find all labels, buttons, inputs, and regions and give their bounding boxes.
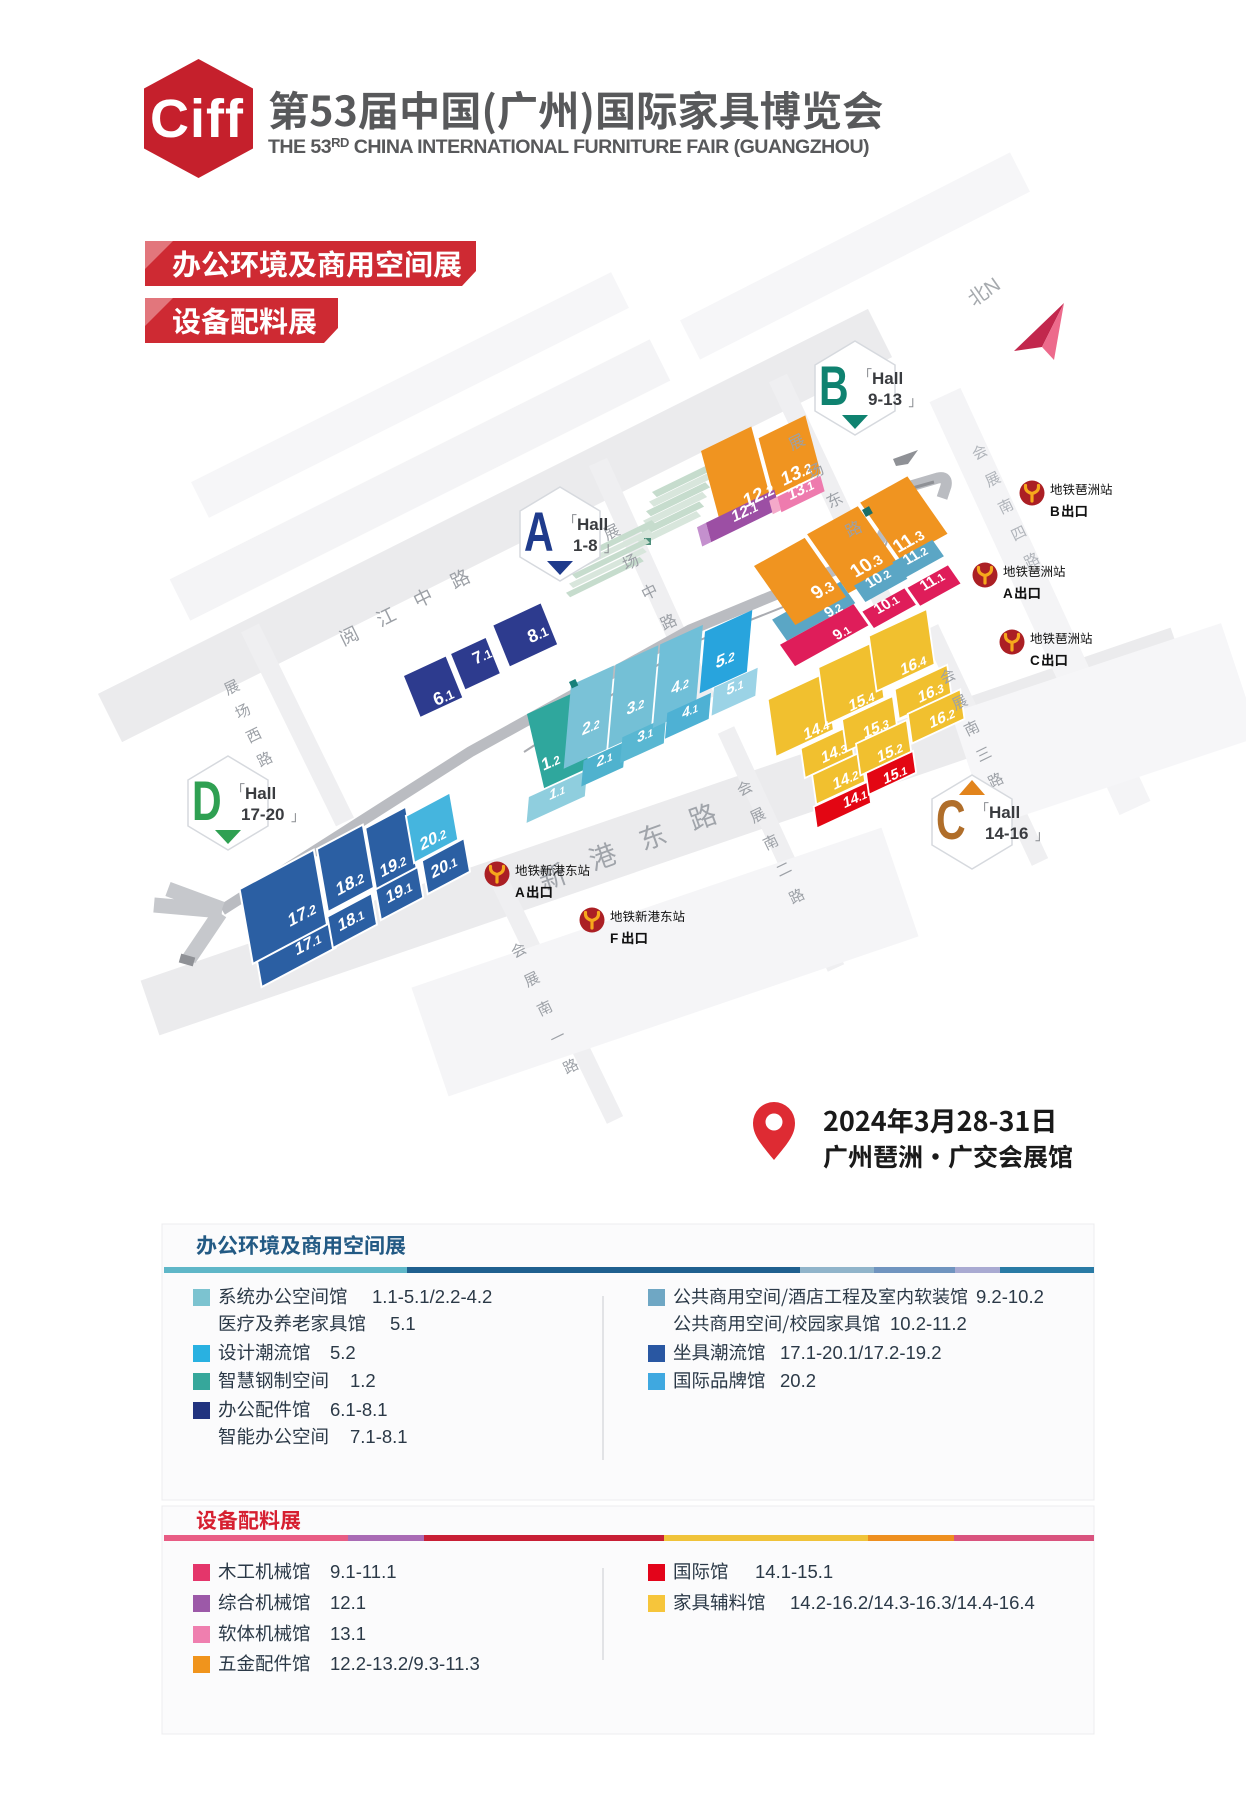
svg-text:17-20: 17-20 — [241, 805, 284, 824]
svg-text:14.2-16.2/14.3-16.3/14.4-16.4: 14.2-16.2/14.3-16.3/14.4-16.4 — [790, 1592, 1035, 1613]
svg-text:6.1-8.1: 6.1-8.1 — [330, 1399, 388, 1420]
svg-text:5.2: 5.2 — [330, 1342, 356, 1363]
svg-text:C: C — [936, 790, 966, 852]
svg-text:10.2-11.2: 10.2-11.2 — [890, 1313, 967, 1334]
svg-text:7.1-8.1: 7.1-8.1 — [350, 1426, 408, 1447]
svg-text:13.1: 13.1 — [330, 1623, 366, 1644]
svg-text:20.2: 20.2 — [780, 1370, 816, 1391]
svg-text:D: D — [192, 771, 222, 833]
svg-text:12.2-13.2/9.3-11.3: 12.2-13.2/9.3-11.3 — [330, 1653, 480, 1674]
svg-text:A: A — [524, 502, 554, 564]
svg-text:9-13: 9-13 — [868, 390, 902, 409]
svg-text:14-16: 14-16 — [985, 824, 1028, 843]
svg-text:17.1-20.1/17.2-19.2: 17.1-20.1/17.2-19.2 — [780, 1342, 942, 1363]
svg-text:1.2: 1.2 — [350, 1370, 376, 1391]
svg-text:9.2-10.2: 9.2-10.2 — [976, 1286, 1044, 1307]
svg-text:B: B — [819, 356, 849, 418]
svg-text:14.1-15.1: 14.1-15.1 — [755, 1561, 833, 1582]
svg-text:Hall: Hall — [989, 803, 1020, 822]
svg-text:B: B — [1050, 504, 1060, 519]
svg-text:12.1: 12.1 — [330, 1592, 366, 1613]
svg-text:A: A — [1003, 586, 1013, 601]
svg-text:5.1: 5.1 — [390, 1313, 416, 1334]
svg-text:C: C — [1030, 653, 1040, 668]
svg-text:A: A — [515, 885, 525, 900]
svg-text:Hall: Hall — [577, 515, 608, 534]
svg-text:F: F — [610, 931, 618, 946]
svg-text:1-8: 1-8 — [573, 536, 598, 555]
svg-text:THE 53RD CHINA INTERNATIONAL F: THE 53RD CHINA INTERNATIONAL FURNITURE F… — [268, 135, 869, 158]
svg-text:9.1-11.1: 9.1-11.1 — [330, 1561, 397, 1582]
svg-text:N: N — [980, 274, 1004, 300]
svg-text:Hall: Hall — [245, 784, 276, 803]
svg-text:Hall: Hall — [872, 369, 903, 388]
svg-text:1.1-5.1/2.2-4.2: 1.1-5.1/2.2-4.2 — [372, 1286, 492, 1307]
svg-text:Ciff: Ciff — [150, 89, 244, 149]
